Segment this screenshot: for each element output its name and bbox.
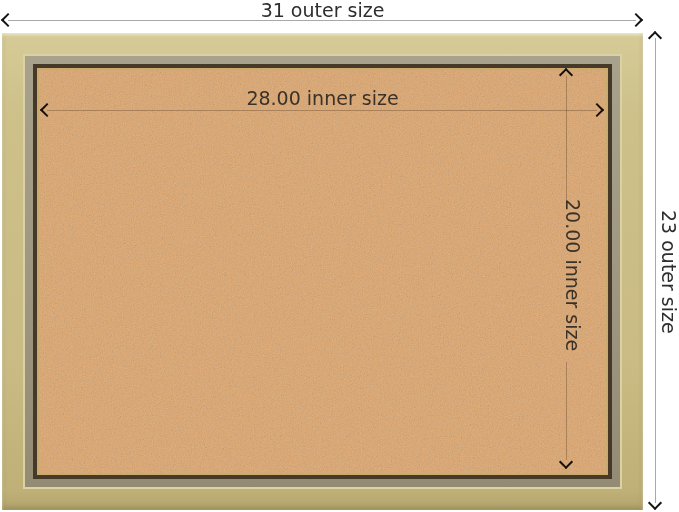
- product-dimension-diagram: 31 outer size 23 outer size 28.00 inner …: [0, 0, 679, 512]
- outer-width-label: 31 outer size: [2, 0, 643, 20]
- cork-surface: [39, 70, 606, 473]
- inner-width-line: [47, 110, 597, 111]
- frame-inner-lip: [33, 64, 612, 479]
- outer-width-line: [8, 20, 636, 21]
- cork-texture-light: [39, 70, 606, 473]
- inner-height-label: 20.00 inner size: [563, 78, 583, 473]
- outer-height-label: 23 outer size: [659, 33, 679, 511]
- outer-height-line: [655, 38, 656, 503]
- frame-gold-fillet: [37, 68, 608, 475]
- frame-step: [23, 54, 622, 489]
- inner-width-label: 28.00 inner size: [39, 88, 606, 108]
